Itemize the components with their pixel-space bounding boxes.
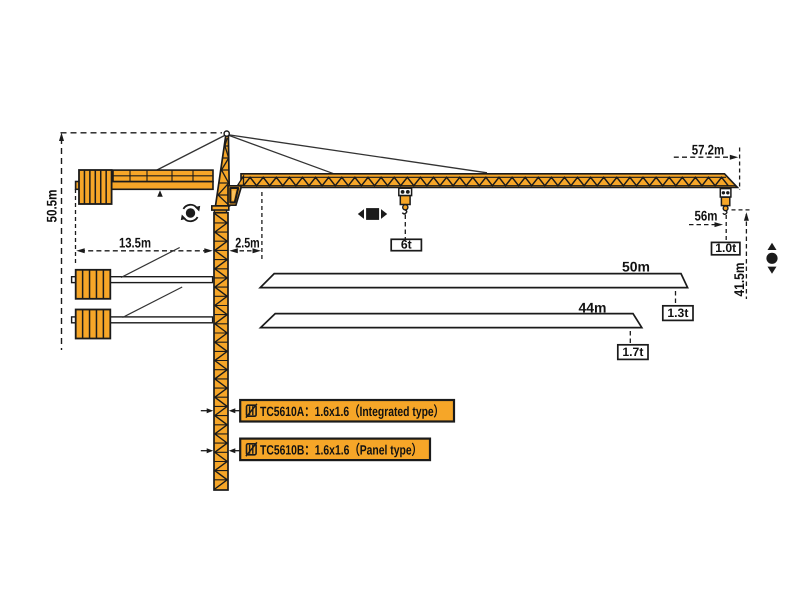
svg-text:TC5610B：1.6x1.6（Panel type）: TC5610B：1.6x1.6（Panel type） bbox=[260, 442, 422, 457]
svg-text:44m: 44m bbox=[579, 300, 607, 316]
svg-text:2.5m: 2.5m bbox=[235, 234, 260, 250]
svg-text:TC5610A：1.6x1.6（Integrated typ: TC5610A：1.6x1.6（Integrated type） bbox=[260, 404, 444, 419]
svg-text:1.3t: 1.3t bbox=[667, 306, 688, 320]
svg-text:41.5m: 41.5m bbox=[731, 263, 747, 297]
svg-text:1.7t: 1.7t bbox=[622, 345, 643, 359]
svg-text:13.5m: 13.5m bbox=[119, 234, 151, 250]
svg-text:50m: 50m bbox=[622, 258, 650, 274]
svg-text:57.2m: 57.2m bbox=[692, 141, 725, 157]
svg-text:1.0t: 1.0t bbox=[715, 241, 736, 255]
svg-text:6t: 6t bbox=[401, 238, 412, 252]
svg-text:50.5m: 50.5m bbox=[44, 190, 60, 223]
svg-text:56m: 56m bbox=[695, 208, 718, 224]
